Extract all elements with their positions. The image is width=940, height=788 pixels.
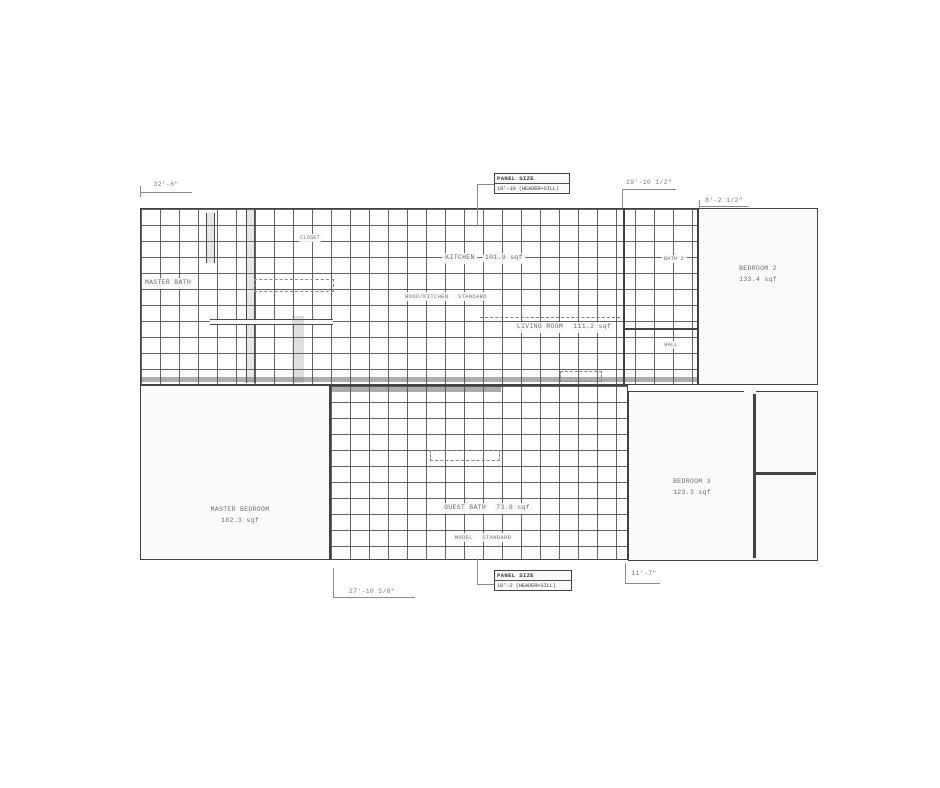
floorplan-drawing: MASTER BATH CLOSET KITCHEN 101.9 sqf HOO… xyxy=(0,0,940,788)
dim-bottom-right: 11'-7" xyxy=(631,570,656,577)
closet-strip xyxy=(206,213,215,263)
kitchen-note-line1: HOOD/KITCHEN xyxy=(402,292,451,301)
wall-bath2-left xyxy=(623,208,625,385)
dim-bottom-left-line xyxy=(333,597,415,598)
wall-band-lower xyxy=(331,386,501,392)
hall-name: HALL xyxy=(661,341,680,349)
label-guest-bath: GUEST BATH 73.8 sqf xyxy=(441,503,533,514)
wall-masterbath-right xyxy=(246,209,255,383)
label-hall: HALL xyxy=(661,341,680,349)
kitchen-note-line2: STANDARD xyxy=(455,292,490,301)
label-guest-note: MODEL STANDARD xyxy=(452,533,514,542)
callout-bottom: PANEL SIZE 10'-2 (HEADER+SILL) xyxy=(494,570,572,591)
callout-top-leader-v xyxy=(477,184,478,226)
dim-bottom-left: 27'-10 5/8" xyxy=(349,588,395,595)
label-living: LIVING ROOM 111.2 sqf xyxy=(514,322,614,333)
wall-bedroom3-closet xyxy=(753,394,756,558)
label-kitchen: KITCHEN 101.9 sqf xyxy=(442,253,525,264)
label-closet: CLOSET xyxy=(297,234,323,242)
fixture-dashed xyxy=(560,371,602,382)
room-bedroom2 xyxy=(698,208,818,385)
guest-note-line2: STANDARD xyxy=(479,533,514,542)
callout-bottom-leader-v xyxy=(477,559,478,584)
guest-bath-area: 73.8 sqf xyxy=(493,503,533,514)
dim-top-right-tick xyxy=(699,200,700,208)
dim-top-right: 8'-2 1/2" xyxy=(705,197,743,204)
wall-band-mid xyxy=(141,377,697,382)
wall-masterbath-bottom xyxy=(210,319,333,325)
label-bedroom3: BEDROOM 3 123.3 sqf xyxy=(673,477,711,498)
label-master-bedroom: MASTER BEDROOM 182.3 sqf xyxy=(211,505,270,526)
kitchen-area: 101.9 sqf xyxy=(482,253,526,264)
dim-bottom-right-line xyxy=(625,583,660,584)
guest-bath-name: GUEST BATH xyxy=(441,503,489,514)
wall-bath2-bottom xyxy=(623,328,698,330)
label-bath2: BATH 2 xyxy=(661,255,687,263)
dim-bottom-left-tick xyxy=(333,568,334,598)
callout-top: PANEL SIZE 10'-10 (HEADER+SILL) xyxy=(494,173,570,194)
callout-top-detail: 10'-10 (HEADER+SILL) xyxy=(495,184,569,193)
living-area: 111.2 sqf xyxy=(570,322,614,333)
bedroom3-name: BEDROOM 3 xyxy=(673,477,711,488)
room-master-bedroom xyxy=(140,385,330,560)
dim-top-mid-line xyxy=(622,189,676,190)
dim-top-mid-tick xyxy=(622,189,623,208)
closet-name: CLOSET xyxy=(297,234,323,242)
wall-closet-divider xyxy=(756,472,816,475)
room-bedroom3 xyxy=(628,391,818,561)
label-bedroom2: BEDROOM 2 133.4 sqf xyxy=(739,264,777,285)
master-bedroom-area: 182.3 sqf xyxy=(211,516,270,527)
dim-top-mid: 19'-10 1/2" xyxy=(626,179,672,186)
dim-top-right-line xyxy=(699,206,749,207)
label-master-bath: MASTER BATH xyxy=(142,278,194,289)
master-bath-name: MASTER BATH xyxy=(142,278,194,289)
callout-bottom-leader-h xyxy=(477,584,494,585)
label-kitchen-note: HOOD/KITCHEN STANDARD xyxy=(402,292,490,301)
bath2-name: BATH 2 xyxy=(661,255,687,263)
dim-top-left-line xyxy=(140,192,192,193)
kitchen-counter-dashed xyxy=(480,317,620,318)
dim-top-left-tick xyxy=(140,186,141,197)
bedroom2-area: 133.4 sqf xyxy=(739,275,777,286)
kitchen-name: KITCHEN xyxy=(442,253,477,264)
callout-top-leader-h xyxy=(477,184,494,185)
door-gap xyxy=(744,389,756,394)
master-bedroom-name: MASTER BEDROOM xyxy=(211,505,270,516)
dim-top-left: 32'-6" xyxy=(153,181,178,188)
vanity-counter-dashed xyxy=(254,279,334,292)
living-name: LIVING ROOM xyxy=(514,322,566,333)
dim-bottom-right-tick xyxy=(625,563,626,584)
callout-bottom-title: PANEL SIZE xyxy=(495,571,571,581)
bedroom3-area: 123.3 sqf xyxy=(673,488,711,499)
wall-smudge xyxy=(292,316,304,383)
floorplan-page: MASTER BATH CLOSET KITCHEN 101.9 sqf HOO… xyxy=(0,0,940,788)
bedroom2-name: BEDROOM 2 xyxy=(739,264,777,275)
callout-top-title: PANEL SIZE xyxy=(495,174,569,184)
guest-note-line1: MODEL xyxy=(452,533,476,542)
callout-bottom-detail: 10'-2 (HEADER+SILL) xyxy=(495,581,571,590)
laundry-fixture-dashed xyxy=(430,450,500,461)
